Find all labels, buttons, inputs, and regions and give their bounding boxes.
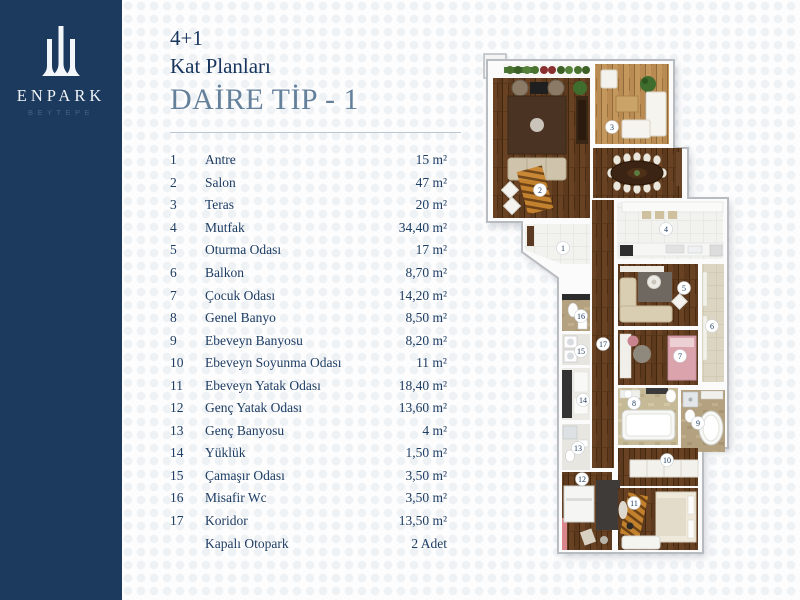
row-number: 16 (170, 490, 205, 506)
room-area: 13,50 m² (399, 513, 447, 529)
row-number: 17 (170, 513, 205, 529)
room-marker-number: 14 (579, 396, 587, 405)
enpark-building-icon (31, 26, 91, 82)
row-number: 6 (170, 265, 205, 281)
room-marker-number: 1 (561, 244, 565, 253)
plan-subtitle: Kat Planları (170, 52, 470, 80)
room-area: 13,60 m² (399, 400, 447, 416)
room-name: Oturma Odası (205, 242, 416, 258)
room-area: 20 m² (416, 197, 447, 213)
row-number: 4 (170, 220, 205, 236)
page-header: 4+1 Kat Planları DAİRE TİP - 1 (170, 24, 470, 118)
table-row: 5 Oturma Odası 17 m² (170, 239, 447, 262)
brand-subtitle: BEYTEPE (0, 108, 122, 117)
page-title: DAİRE TİP - 1 (170, 82, 470, 118)
table-row: 1 Antre 15 m² (170, 149, 447, 172)
room-area: 3,50 m² (405, 490, 447, 506)
row-number: 11 (170, 378, 205, 394)
room-name: Kapalı Otopark (205, 536, 411, 552)
rooms (493, 64, 725, 550)
room-area: 2 Adet (411, 536, 447, 552)
room-marker-number: 6 (710, 322, 714, 331)
table-row: 15 Çamaşır Odası 3,50 m² (170, 465, 447, 488)
row-number: 15 (170, 468, 205, 484)
room-marker-number: 10 (663, 456, 671, 465)
room-area: 4 m² (422, 423, 447, 439)
room-name: Genç Yatak Odası (205, 400, 399, 416)
room-area: 8,20 m² (405, 333, 447, 349)
room-area: 17 m² (416, 242, 447, 258)
page: ENPARK BEYTEPE 4+1 Kat Planları DAİRE Tİ… (0, 0, 800, 600)
table-row: 8 Genel Banyo 8,50 m² (170, 307, 447, 330)
room-marker-number: 15 (577, 347, 585, 356)
table-row: 13 Genç Banyosu 4 m² (170, 420, 447, 443)
room-name: Ebeveyn Yatak Odası (205, 378, 399, 394)
room-marker-number: 7 (678, 352, 682, 361)
table-row: 17 Koridor 13,50 m² (170, 510, 447, 533)
room-name: Salon (205, 175, 416, 191)
room-marker-number: 12 (578, 475, 586, 484)
table-row: 7 Çocuk Odası 14,20 m² (170, 284, 447, 307)
room-area: 11 m² (416, 355, 447, 371)
table-row: 14 Yüklük 1,50 m² (170, 442, 447, 465)
room-marker-number: 16 (577, 312, 585, 321)
row-number: 5 (170, 242, 205, 258)
room-marker-number: 13 (574, 444, 582, 453)
sidebar: ENPARK BEYTEPE (0, 0, 122, 600)
room-name: Genel Banyo (205, 310, 405, 326)
room-name: Ebeveyn Soyunma Odası (205, 355, 416, 371)
room-name: Genç Banyosu (205, 423, 422, 439)
room-name: Çamaşır Odası (205, 468, 405, 484)
room-name: Koridor (205, 513, 399, 529)
table-row: 10 Ebeveyn Soyunma Odası 11 m² (170, 352, 447, 375)
room-area: 3,50 m² (405, 468, 447, 484)
table-row: 3 Teras 20 m² (170, 194, 447, 217)
room-name: Misafir Wc (205, 490, 405, 506)
room-name: Mutfak (205, 220, 399, 236)
room-area: 8,50 m² (405, 310, 447, 326)
room-area: 1,50 m² (405, 445, 447, 461)
table-row: 16 Misafir Wc 3,50 m² (170, 487, 447, 510)
room-name: Teras (205, 197, 416, 213)
room-marker-number: 5 (682, 284, 686, 293)
row-number: 13 (170, 423, 205, 439)
room-area: 34,40 m² (399, 220, 447, 236)
floor-plan: 1234567891011121314151617 (470, 0, 800, 600)
table-row: 4 Mutfak 34,40 m² (170, 217, 447, 240)
room-koridor (592, 200, 614, 468)
table-row: Kapalı Otopark 2 Adet (170, 532, 447, 555)
plan-category: 4+1 (170, 24, 470, 52)
room-table: 1 Antre 15 m² 2 Salon 47 m² 3 Teras 20 m… (170, 149, 447, 555)
room-area: 47 m² (416, 175, 447, 191)
room-name: Antre (205, 152, 416, 168)
row-number: 14 (170, 445, 205, 461)
room-name: Çocuk Odası (205, 288, 399, 304)
row-number: 10 (170, 355, 205, 371)
row-number: 8 (170, 310, 205, 326)
room-area: 8,70 m² (405, 265, 447, 281)
row-number: 2 (170, 175, 205, 191)
room-marker-number: 17 (599, 340, 607, 349)
room-name: Ebeveyn Banyosu (205, 333, 405, 349)
content-area: 4+1 Kat Planları DAİRE TİP - 1 1 Antre 1… (122, 0, 800, 600)
row-number: 3 (170, 197, 205, 213)
table-row: 6 Balkon 8,70 m² (170, 262, 447, 285)
room-area: 15 m² (416, 152, 447, 168)
row-number: 1 (170, 152, 205, 168)
room-area: 14,20 m² (399, 288, 447, 304)
room-name: Balkon (205, 265, 405, 281)
table-row: 11 Ebeveyn Yatak Odası 18,40 m² (170, 374, 447, 397)
title-divider (170, 132, 461, 133)
room-area: 18,40 m² (399, 378, 447, 394)
row-number: 9 (170, 333, 205, 349)
table-row: 12 Genç Yatak Odası 13,60 m² (170, 397, 447, 420)
table-row: 9 Ebeveyn Banyosu 8,20 m² (170, 329, 447, 352)
row-number: 7 (170, 288, 205, 304)
room-marker-number: 11 (630, 499, 638, 508)
room-name: Yüklük (205, 445, 405, 461)
room-marker-number: 9 (696, 419, 700, 428)
room-marker-number: 8 (632, 399, 636, 408)
room-marker-number: 4 (664, 225, 668, 234)
brand-logo: ENPARK BEYTEPE (0, 26, 122, 117)
room-marker-number: 2 (538, 186, 542, 195)
brand-name: ENPARK (0, 86, 122, 106)
table-row: 2 Salon 47 m² (170, 172, 447, 195)
room-marker-number: 3 (610, 123, 614, 132)
row-number: 12 (170, 400, 205, 416)
